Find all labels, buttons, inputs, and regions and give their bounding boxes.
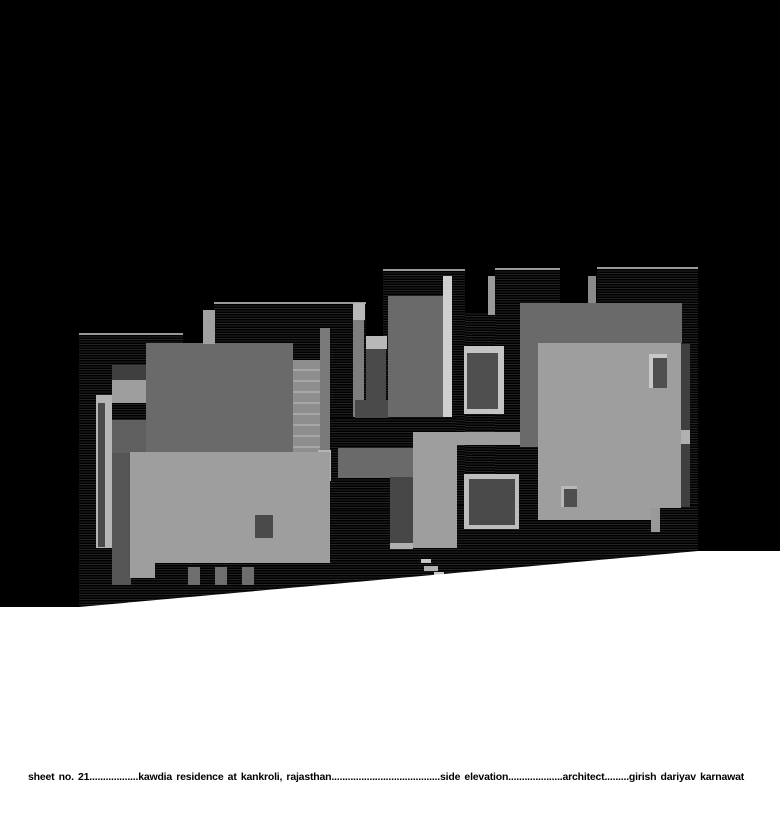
slot-window-cap <box>366 336 387 349</box>
pier-cap <box>353 303 365 320</box>
center-light-column <box>413 432 457 548</box>
right-gap-column <box>588 276 596 303</box>
title-bar: sheet no. 21..................kawdia res… <box>28 771 744 787</box>
right-edge-strip-light <box>681 430 690 444</box>
left-light-panel <box>112 380 146 403</box>
left-dark-slit <box>98 403 105 547</box>
right-light-step <box>538 508 651 520</box>
central-tower-face <box>388 296 443 417</box>
upper-window <box>467 353 498 409</box>
right-light-tab <box>651 508 660 532</box>
staircase <box>293 360 320 452</box>
right-door <box>653 358 667 388</box>
right-mid-face <box>520 303 682 343</box>
central-bright-strip <box>443 276 452 417</box>
center-dark-ledge <box>355 400 388 418</box>
lower-slab-left-wing <box>130 452 155 578</box>
base-post-1 <box>188 567 200 585</box>
elevation-sheet: sheet no. 21..................kawdia res… <box>0 0 780 813</box>
small-window <box>564 489 577 507</box>
ground-step-1 <box>421 559 431 563</box>
base-post-3 <box>242 567 254 585</box>
center-door <box>390 477 413 543</box>
left-dark-panel <box>112 365 146 380</box>
left-column <box>112 453 131 585</box>
right-edge-strip <box>681 344 690 507</box>
gap-pilaster <box>488 276 495 315</box>
slab-window <box>255 515 273 538</box>
big-square-window <box>469 479 515 525</box>
right-mid-face-ext <box>520 343 538 447</box>
stair-stringer <box>320 328 330 452</box>
left-upper-face <box>146 343 293 453</box>
left-mid-panel <box>112 420 146 453</box>
base-post-2 <box>215 567 227 585</box>
center-door-sill <box>390 543 413 549</box>
center-mid-block <box>338 448 413 478</box>
title-text: sheet no. 21..................kawdia res… <box>28 771 744 783</box>
lower-slab <box>133 452 330 563</box>
parapet-column <box>203 310 215 344</box>
ground-step-2 <box>424 566 438 571</box>
